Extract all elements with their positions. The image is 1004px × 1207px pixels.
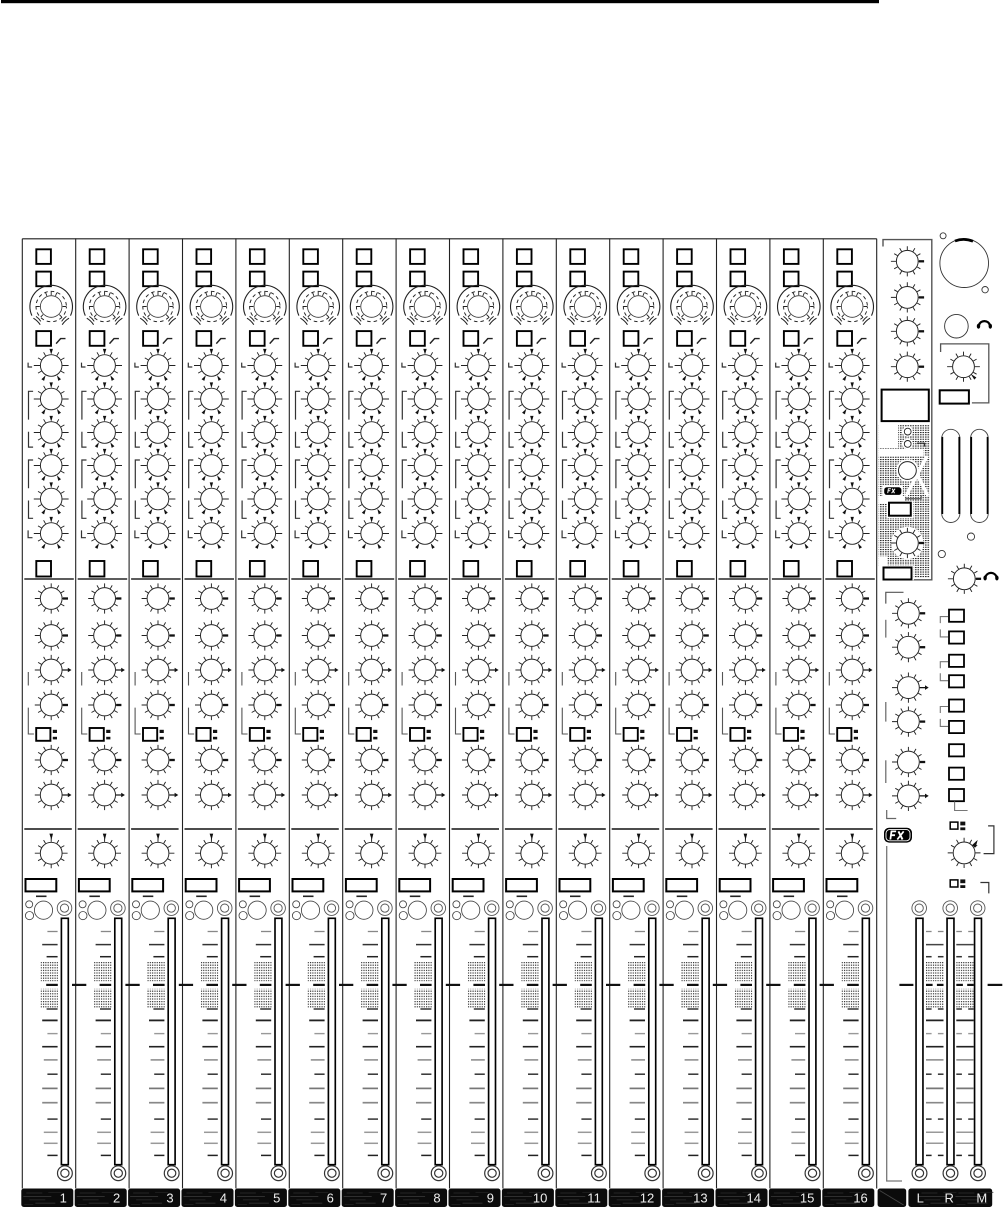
svg-text:4: 4 bbox=[220, 1191, 227, 1206]
svg-text:13: 13 bbox=[693, 1191, 707, 1206]
svg-text:16: 16 bbox=[853, 1191, 867, 1206]
svg-text:R: R bbox=[945, 1191, 954, 1206]
svg-text:14: 14 bbox=[747, 1191, 761, 1206]
svg-text:6: 6 bbox=[327, 1191, 334, 1206]
svg-text:12: 12 bbox=[640, 1191, 654, 1206]
svg-text:15: 15 bbox=[800, 1191, 814, 1206]
svg-text:L: L bbox=[917, 1191, 924, 1206]
svg-text:2: 2 bbox=[113, 1191, 120, 1206]
svg-text:10: 10 bbox=[533, 1191, 547, 1206]
svg-text:M: M bbox=[976, 1191, 987, 1206]
svg-text:1: 1 bbox=[60, 1191, 67, 1206]
svg-text:7: 7 bbox=[380, 1191, 387, 1206]
svg-text:8: 8 bbox=[433, 1191, 440, 1206]
svg-text:11: 11 bbox=[587, 1191, 601, 1206]
svg-text:9: 9 bbox=[487, 1191, 494, 1206]
svg-text:5: 5 bbox=[273, 1191, 280, 1206]
svg-text:3: 3 bbox=[166, 1191, 173, 1206]
